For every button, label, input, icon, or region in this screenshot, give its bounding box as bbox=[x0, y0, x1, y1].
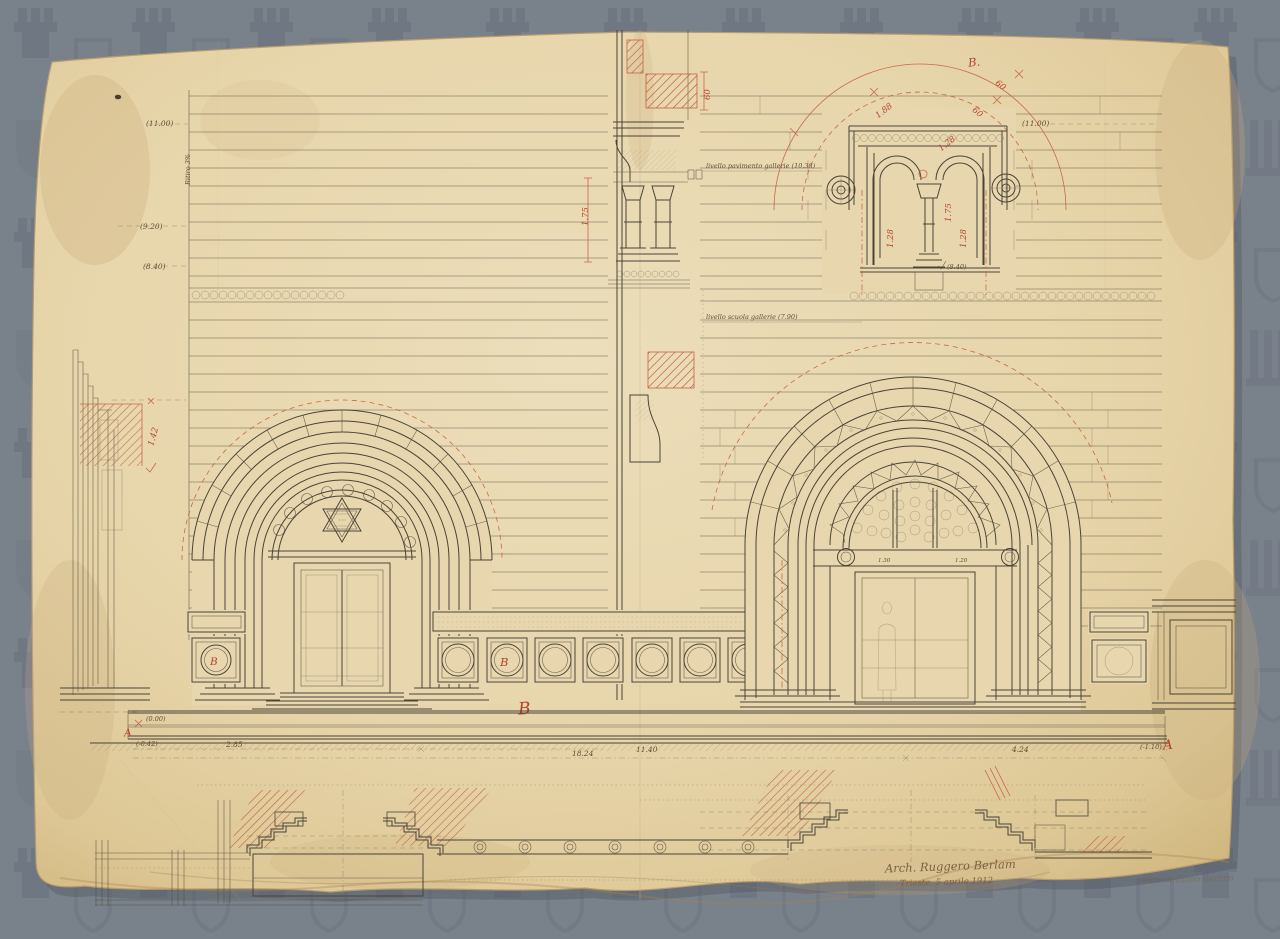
ritiro-label: Ritiro 3% bbox=[184, 154, 192, 186]
level-minus-label: (-0.42) bbox=[136, 740, 158, 748]
marker-a-right: A bbox=[1161, 737, 1174, 754]
base-dim-label: 11.40 bbox=[636, 745, 658, 754]
level-label: (8.40) bbox=[143, 262, 166, 271]
level-right-minus-label: (-1.10) bbox=[1140, 743, 1162, 751]
bay-dim-label: 1.28 bbox=[959, 228, 969, 248]
level-zero-label: (0.00) bbox=[146, 715, 166, 723]
bay-dim-label: 1.28 bbox=[886, 228, 896, 248]
level-label: (9.20) bbox=[140, 222, 163, 231]
gallery-level-note: livello pavimento gallerie (10.38) bbox=[706, 162, 816, 170]
ink-blot bbox=[115, 95, 121, 100]
ground-b-label: B bbox=[516, 699, 531, 720]
lintel-dim-label: 1.20 bbox=[955, 558, 968, 564]
panel-b-mid-label: B bbox=[499, 655, 508, 669]
base-dim-label: 18.24 bbox=[572, 749, 594, 758]
base-dim-label: 2.85 bbox=[225, 740, 243, 749]
bifora-level-label: (8.40) bbox=[947, 263, 967, 271]
section-col-label: 1.75 bbox=[581, 207, 591, 226]
base-dim-label: 4.24 bbox=[1011, 745, 1029, 754]
drawing-canvas: (11.00) (9.20) (8.40) Ritiro 3% (11.00) … bbox=[0, 0, 1280, 939]
circle-panel-row bbox=[436, 636, 772, 684]
lintel-dim-label: 1.30 bbox=[878, 558, 891, 564]
col-height-label: 1.75 bbox=[944, 203, 954, 222]
detail-ref-label: B. bbox=[966, 55, 981, 70]
scanned-architectural-drawing: (11.00) (9.20) (8.40) Ritiro 3% (11.00) … bbox=[0, 0, 1280, 939]
panel-b-left-label: B bbox=[209, 656, 218, 668]
marker-a-left: A bbox=[123, 727, 133, 740]
school-level-note: livello scuola gallerie (7.90) bbox=[706, 313, 798, 321]
level-label: (11.00) bbox=[146, 119, 173, 128]
section-dim-label: 60 bbox=[703, 89, 713, 100]
